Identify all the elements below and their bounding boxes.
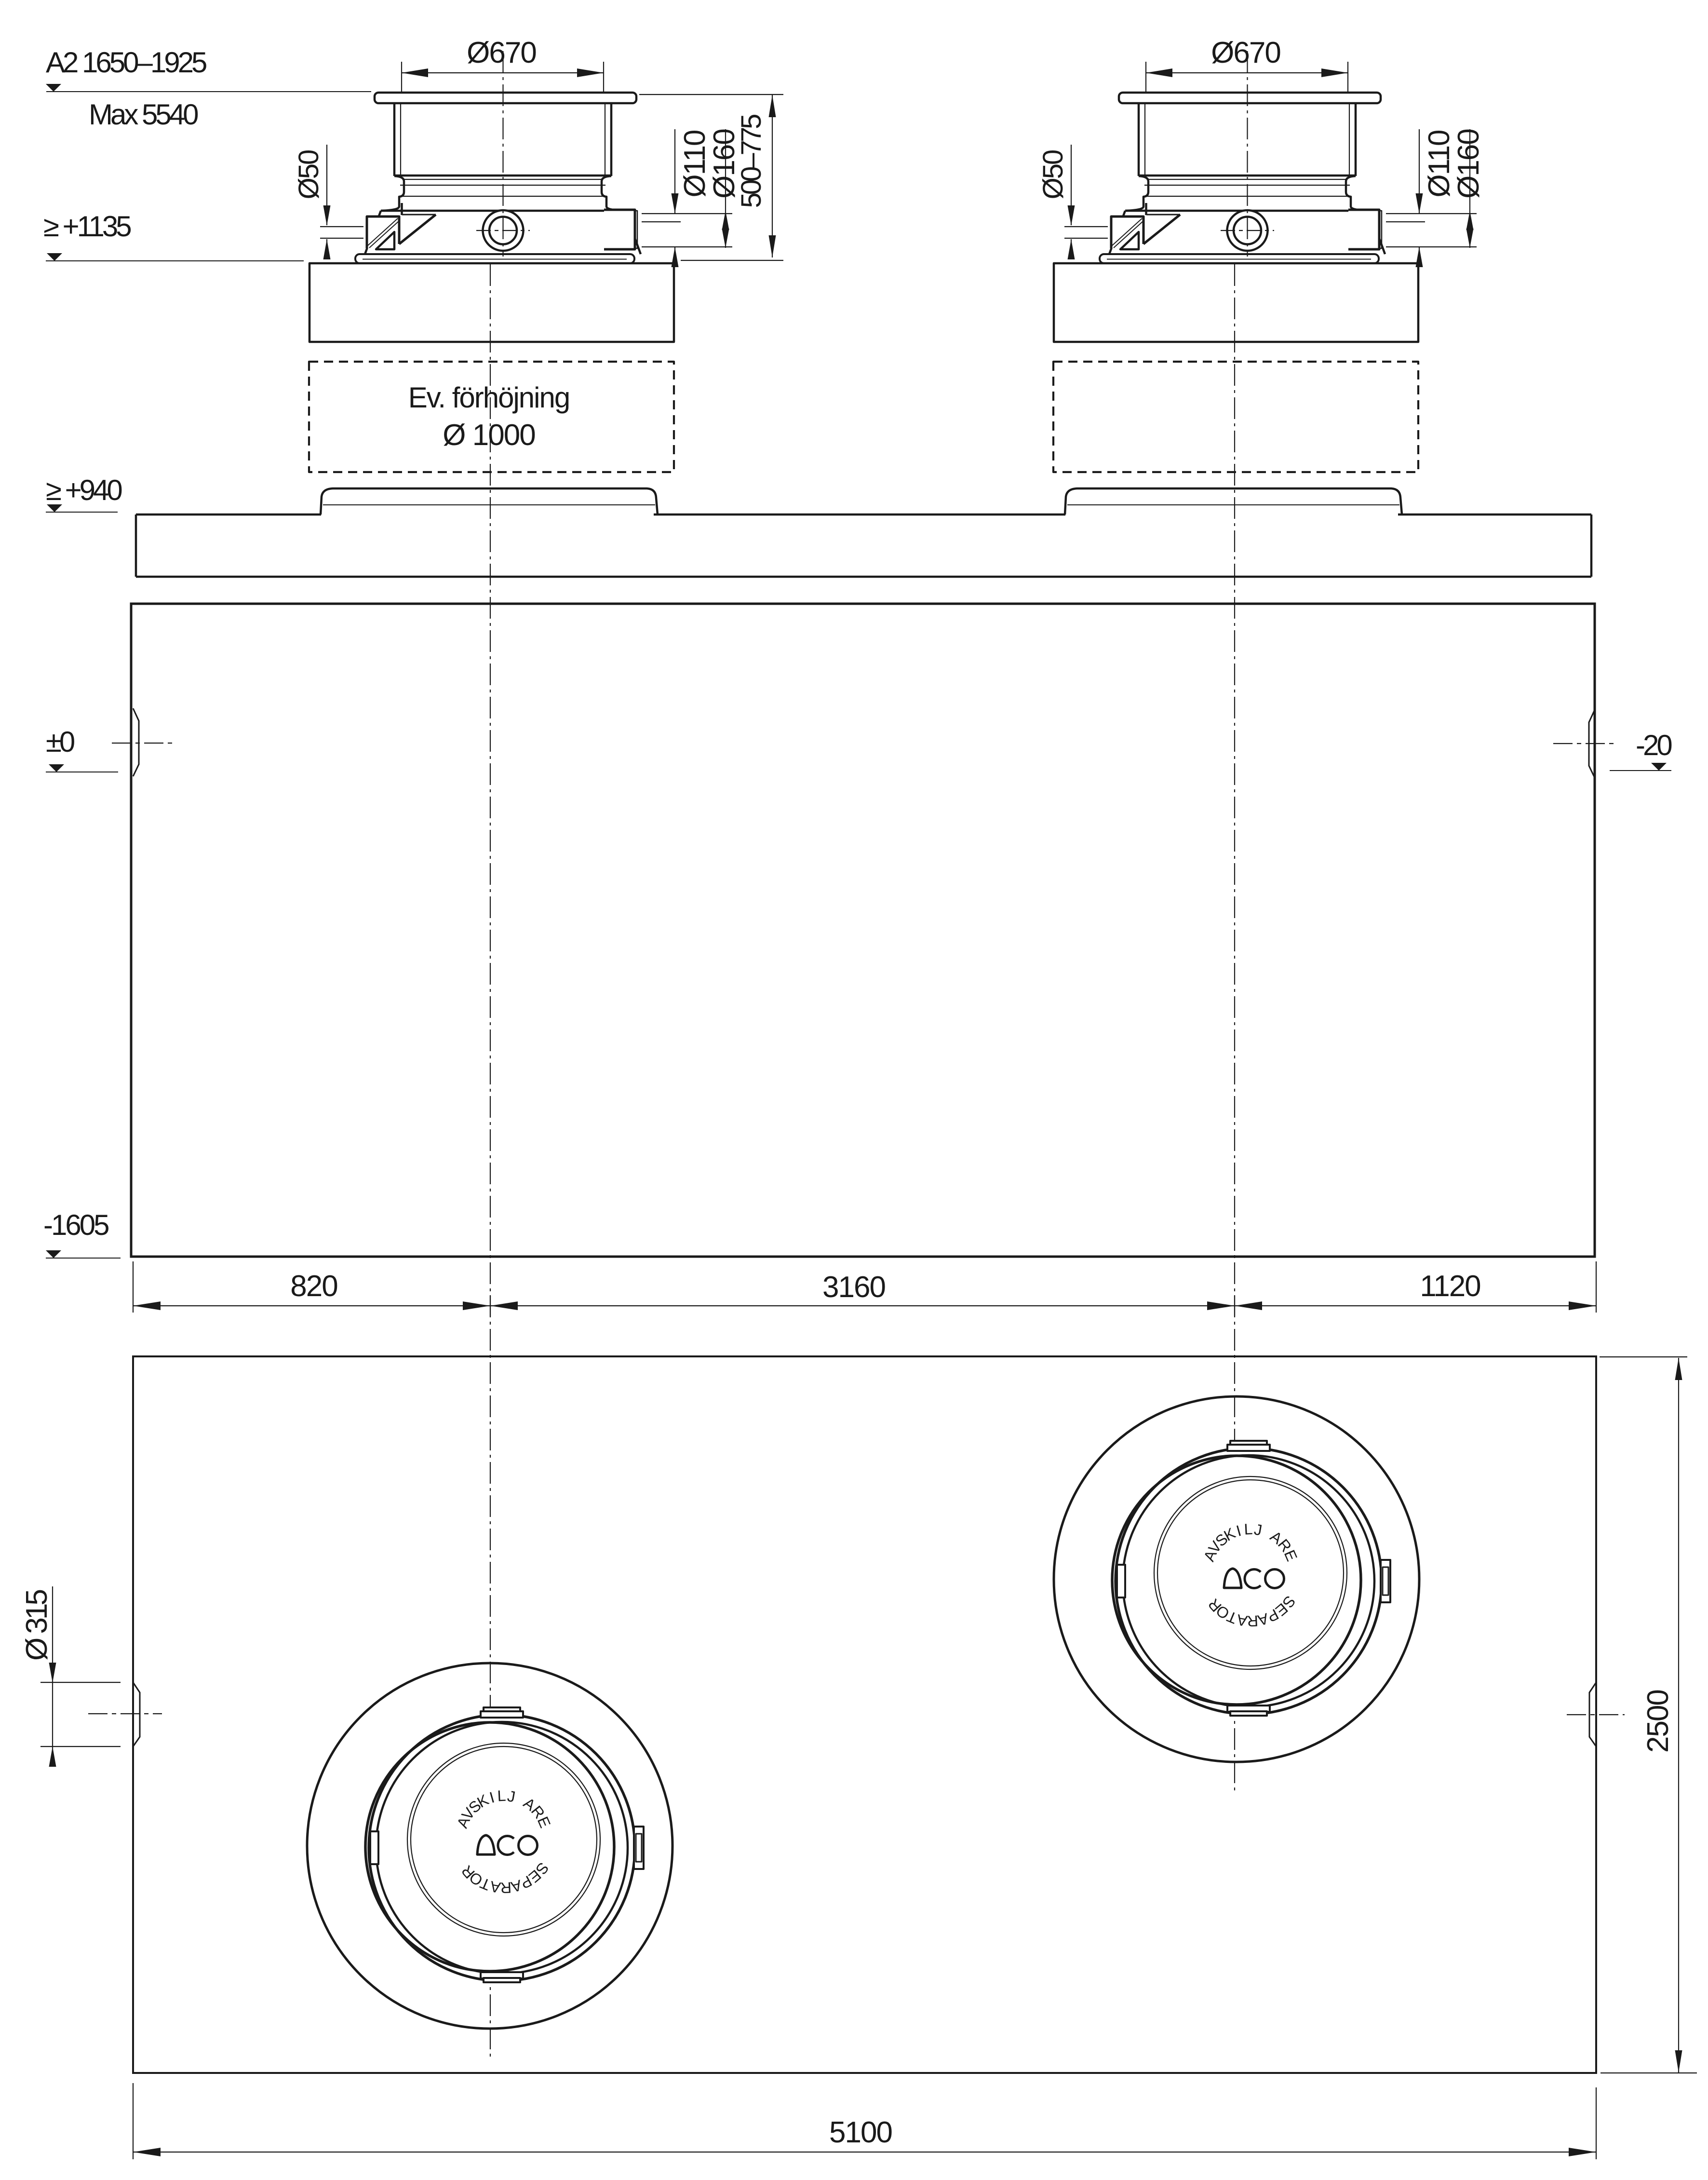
svg-text:820: 820	[290, 1270, 337, 1303]
svg-text:Max 5540: Max 5540	[89, 98, 198, 131]
svg-text:-1605: -1605	[43, 1209, 108, 1241]
svg-text:500–775: 500–775	[736, 115, 767, 208]
svg-text:Ev. förhöjning: Ev. förhöjning	[408, 381, 569, 414]
svg-text:≥ +940: ≥ +940	[46, 474, 122, 506]
svg-text:3160: 3160	[822, 1271, 885, 1304]
svg-text:Ø 1000: Ø 1000	[443, 419, 535, 452]
svg-text:Ø 315: Ø 315	[20, 1590, 54, 1661]
svg-text:A2 1650–1925: A2 1650–1925	[46, 46, 206, 79]
svg-text:≥ +1135: ≥ +1135	[43, 210, 131, 243]
svg-text:5100: 5100	[829, 2116, 892, 2149]
svg-text:2500: 2500	[1641, 1690, 1675, 1753]
svg-text:-20: -20	[1636, 729, 1672, 761]
svg-text:1120: 1120	[1420, 1270, 1480, 1303]
svg-text:±0: ±0	[46, 726, 75, 758]
